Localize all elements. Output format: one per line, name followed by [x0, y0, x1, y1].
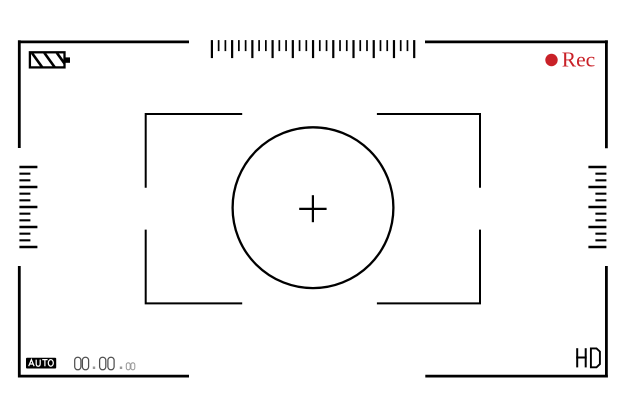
svg-text:Rec: Rec [562, 48, 595, 72]
